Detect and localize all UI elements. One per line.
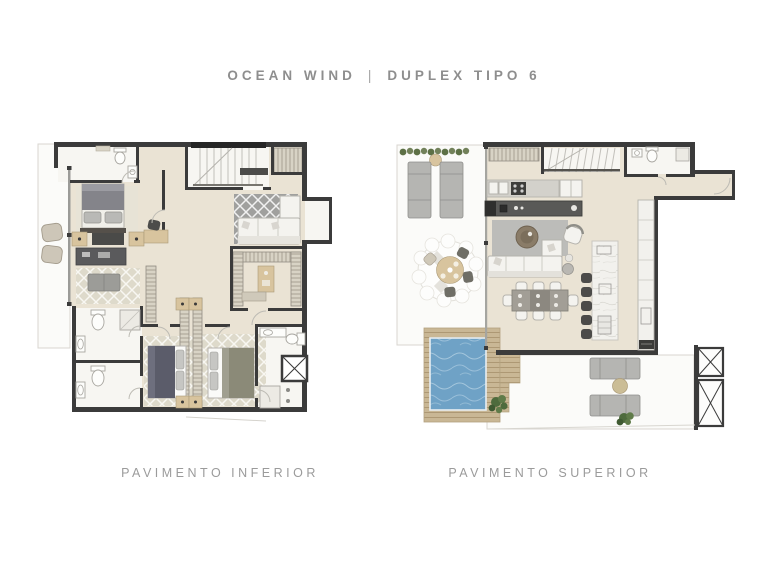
armchair [41,223,63,243]
chair [444,287,456,298]
closet-island [258,266,274,292]
side-table [563,264,574,275]
suite-3 [208,348,254,398]
lounger [408,162,431,218]
lower-floor-plan [36,140,332,428]
desk [144,230,168,243]
bar-counter [485,201,582,216]
stair-console [240,168,268,175]
toilet [114,148,126,152]
lounger [590,358,640,379]
upper-floor-label: PAVIMENTO SUPERIOR [448,466,651,480]
lounger [590,395,640,416]
pool [430,338,486,410]
sink [632,149,642,157]
lounger [440,162,463,218]
floorplan-page: OCEAN WIND|DUPLEX TIPO 6 [0,0,768,576]
suite-2 [148,346,186,398]
side-table [565,254,573,262]
pantry-counter [489,148,539,161]
page-title: OCEAN WIND|DUPLEX TIPO 6 [0,68,768,83]
upper-floor-plan [392,138,740,434]
lower-floor-label: PAVIMENTO INFERIOR [121,466,319,480]
project-name: OCEAN WIND [227,68,356,83]
shower [260,386,280,408]
side-balcony [305,199,329,243]
title-separator: | [368,68,376,83]
balcony-edge [186,417,266,421]
armchair [41,245,63,264]
deck-step [500,352,520,383]
oven [639,340,654,349]
side-table [613,379,628,394]
elevator-lower [282,356,307,381]
shower [676,148,689,161]
unit-type: DUPLEX TIPO 6 [387,68,540,83]
cooktop [511,182,526,195]
bed-bench [92,233,124,245]
tall-cabinets [638,200,654,350]
elevator-upper [698,348,723,426]
closet-bench [242,292,266,301]
